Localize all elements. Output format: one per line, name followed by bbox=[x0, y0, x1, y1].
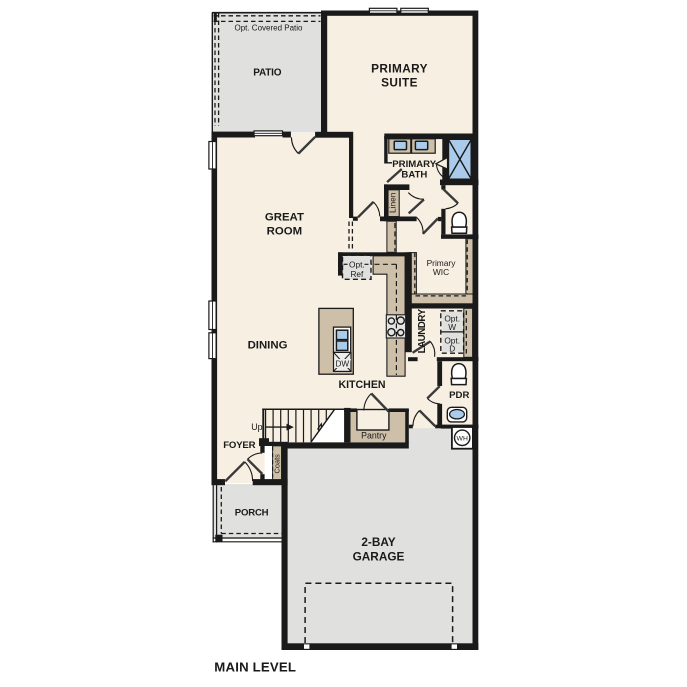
svg-text:SUITE: SUITE bbox=[381, 75, 418, 89]
svg-text:PDR: PDR bbox=[449, 390, 469, 401]
svg-text:PRIMARY: PRIMARY bbox=[371, 62, 428, 76]
svg-text:W: W bbox=[448, 322, 456, 332]
svg-text:ROOM: ROOM bbox=[267, 225, 302, 237]
svg-text:PORCH: PORCH bbox=[235, 508, 269, 519]
svg-text:Up: Up bbox=[251, 422, 262, 432]
svg-text:D: D bbox=[449, 344, 455, 354]
svg-text:Opt. Covered Patio: Opt. Covered Patio bbox=[234, 23, 303, 32]
svg-text:Pantry: Pantry bbox=[361, 430, 387, 440]
svg-text:2-BAY: 2-BAY bbox=[361, 535, 395, 549]
svg-text:PRIMARY: PRIMARY bbox=[392, 159, 436, 170]
svg-text:Linen: Linen bbox=[388, 192, 398, 213]
svg-text:Coats: Coats bbox=[273, 454, 282, 474]
svg-text:WIC: WIC bbox=[433, 267, 449, 277]
svg-text:GARAGE: GARAGE bbox=[353, 549, 405, 563]
svg-text:LAUNDRY: LAUNDRY bbox=[417, 308, 428, 353]
svg-text:WH: WH bbox=[457, 436, 468, 443]
svg-text:Ref: Ref bbox=[350, 269, 364, 279]
svg-text:MAIN LEVEL: MAIN LEVEL bbox=[214, 660, 296, 675]
svg-text:BATH: BATH bbox=[401, 170, 427, 181]
svg-text:GREAT: GREAT bbox=[265, 211, 304, 223]
svg-text:FOYER: FOYER bbox=[223, 440, 255, 451]
svg-text:PATIO: PATIO bbox=[253, 67, 281, 78]
svg-text:DW: DW bbox=[335, 359, 349, 368]
svg-text:DINING: DINING bbox=[248, 340, 288, 352]
svg-text:KITCHEN: KITCHEN bbox=[338, 379, 385, 391]
